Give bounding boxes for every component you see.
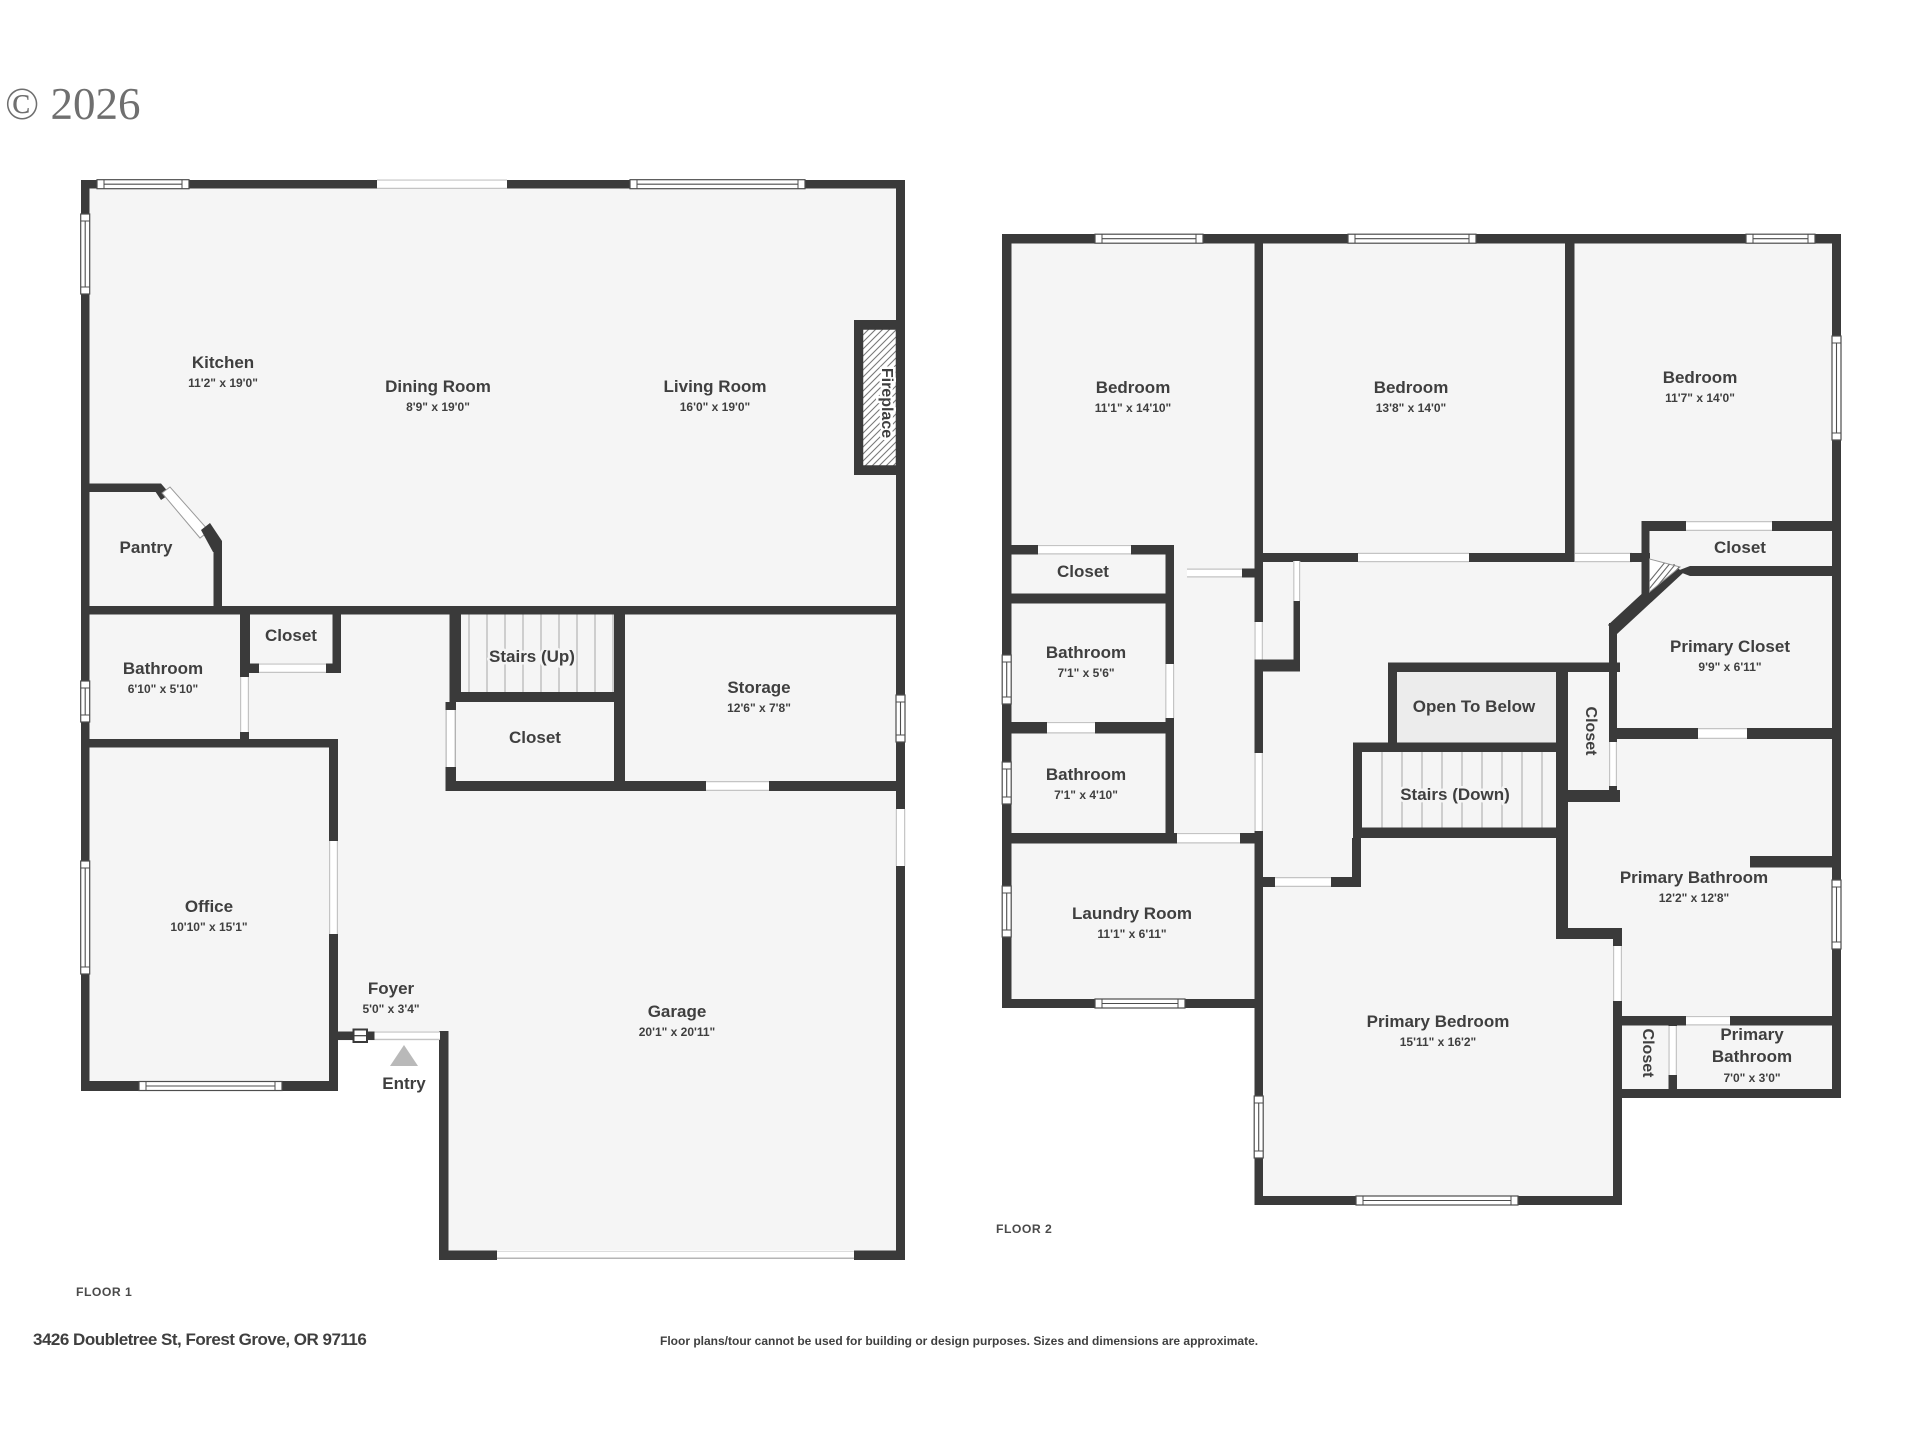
svg-text:Storage: Storage — [727, 678, 790, 697]
svg-text:Bathroom: Bathroom — [123, 659, 203, 678]
svg-text:8'9" x 19'0": 8'9" x 19'0" — [406, 400, 470, 414]
svg-text:Entry: Entry — [382, 1074, 426, 1093]
svg-text:11'1" x 6'11": 11'1" x 6'11" — [1097, 927, 1166, 941]
svg-text:Stairs (Down): Stairs (Down) — [1400, 785, 1510, 804]
svg-text:Bathroom: Bathroom — [1046, 765, 1126, 784]
svg-text:11'2" x 19'0": 11'2" x 19'0" — [188, 376, 258, 390]
svg-text:12'2" x 12'8": 12'2" x 12'8" — [1659, 891, 1729, 905]
svg-text:Garage: Garage — [648, 1002, 707, 1021]
svg-text:Primary Closet: Primary Closet — [1670, 637, 1790, 656]
svg-text:Closet: Closet — [1582, 707, 1599, 757]
svg-text:Kitchen: Kitchen — [192, 353, 254, 372]
svg-text:Closet: Closet — [1714, 538, 1766, 557]
svg-text:Closet: Closet — [1057, 562, 1109, 581]
svg-text:Pantry: Pantry — [120, 538, 173, 557]
svg-text:Open To Below: Open To Below — [1413, 697, 1536, 716]
svg-text:Dining Room: Dining Room — [385, 377, 491, 396]
svg-text:7'0" x 3'0": 7'0" x 3'0" — [1723, 1071, 1780, 1085]
svg-text:FLOOR 2: FLOOR 2 — [996, 1222, 1052, 1236]
svg-text:11'7" x 14'0": 11'7" x 14'0" — [1665, 391, 1735, 405]
svg-text:15'11" x 16'2": 15'11" x 16'2" — [1400, 1035, 1476, 1049]
svg-text:12'6" x 7'8": 12'6" x 7'8" — [727, 701, 791, 715]
svg-text:20'1" x 20'11": 20'1" x 20'11" — [639, 1025, 715, 1039]
svg-text:6'10" x 5'10": 6'10" x 5'10" — [128, 682, 198, 696]
svg-text:Foyer: Foyer — [368, 979, 415, 998]
svg-text:Closet: Closet — [1639, 1029, 1656, 1079]
svg-text:13'8" x 14'0": 13'8" x 14'0" — [1376, 401, 1446, 415]
svg-text:Bathroom: Bathroom — [1046, 643, 1126, 662]
svg-text:Stairs (Up): Stairs (Up) — [489, 647, 575, 666]
svg-text:Fireplace: Fireplace — [878, 368, 895, 438]
svg-text:9'9" x 6'11": 9'9" x 6'11" — [1698, 660, 1761, 674]
svg-text:Bedroom: Bedroom — [1096, 378, 1171, 397]
svg-text:Closet: Closet — [265, 626, 317, 645]
svg-text:16'0" x 19'0": 16'0" x 19'0" — [680, 400, 750, 414]
svg-text:FLOOR 1: FLOOR 1 — [76, 1285, 132, 1299]
svg-text:Primary: Primary — [1720, 1025, 1784, 1044]
svg-text:7'1" x 4'10": 7'1" x 4'10" — [1054, 788, 1118, 802]
svg-text:Floor plans/tour cannot be use: Floor plans/tour cannot be used for buil… — [660, 1334, 1258, 1348]
svg-text:7'1" x 5'6": 7'1" x 5'6" — [1057, 666, 1114, 680]
svg-text:Primary Bedroom: Primary Bedroom — [1367, 1012, 1510, 1031]
svg-text:Bathroom: Bathroom — [1712, 1047, 1792, 1066]
svg-text:5'0" x 3'4": 5'0" x 3'4" — [362, 1002, 419, 1016]
svg-text:3426 Doubletree St, Forest Gro: 3426 Doubletree St, Forest Grove, OR 971… — [33, 1330, 366, 1349]
svg-text:Office: Office — [185, 897, 233, 916]
svg-text:Laundry Room: Laundry Room — [1072, 904, 1192, 923]
svg-text:Living Room: Living Room — [664, 377, 767, 396]
svg-text:© 2026: © 2026 — [5, 79, 140, 129]
svg-text:11'1" x 14'10": 11'1" x 14'10" — [1095, 401, 1171, 415]
svg-text:10'10" x 15'1": 10'10" x 15'1" — [170, 920, 247, 934]
svg-text:Bedroom: Bedroom — [1374, 378, 1449, 397]
svg-text:Bedroom: Bedroom — [1663, 368, 1738, 387]
svg-text:Closet: Closet — [509, 728, 561, 747]
svg-text:Primary Bathroom: Primary Bathroom — [1620, 868, 1768, 887]
